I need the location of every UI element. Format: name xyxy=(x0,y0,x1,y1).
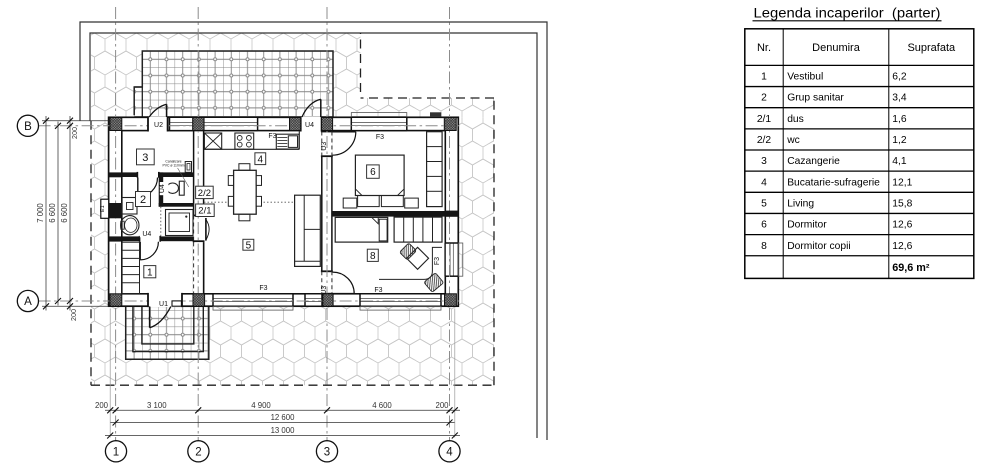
svg-text:200: 200 xyxy=(70,127,79,139)
svg-text:F3: F3 xyxy=(434,257,441,265)
svg-text:2/2: 2/2 xyxy=(757,135,772,146)
svg-text:2/2: 2/2 xyxy=(198,188,211,199)
svg-text:5: 5 xyxy=(246,240,252,251)
svg-text:8: 8 xyxy=(761,241,767,252)
svg-text:2: 2 xyxy=(140,194,146,206)
svg-text:Living: Living xyxy=(787,198,814,209)
svg-text:200: 200 xyxy=(435,401,449,410)
svg-text:3 100: 3 100 xyxy=(147,401,167,410)
svg-text:B: B xyxy=(24,121,32,133)
svg-text:dus: dus xyxy=(787,114,804,125)
svg-text:wc: wc xyxy=(786,135,800,146)
svg-text:4,1: 4,1 xyxy=(892,156,907,167)
svg-text:Bucatarie-sufragerie: Bucatarie-sufragerie xyxy=(787,177,880,188)
svg-text:4: 4 xyxy=(258,154,264,165)
svg-text:15,8: 15,8 xyxy=(892,198,912,209)
svg-text:F3: F3 xyxy=(259,285,267,292)
svg-text:6: 6 xyxy=(761,220,767,231)
svg-text:4 900: 4 900 xyxy=(251,401,271,410)
svg-text:3: 3 xyxy=(142,152,148,164)
svg-text:Legenda incaperilor (parter): Legenda incaperilor (parter) xyxy=(754,6,941,21)
svg-text:2: 2 xyxy=(195,446,201,458)
svg-text:U2: U2 xyxy=(154,122,163,129)
svg-text:E1: E1 xyxy=(100,205,106,212)
svg-text:2/1: 2/1 xyxy=(757,114,772,125)
svg-text:4 600: 4 600 xyxy=(372,401,392,410)
svg-text:3: 3 xyxy=(324,446,330,458)
svg-text:69,6 m²: 69,6 m² xyxy=(892,262,930,274)
svg-text:F3: F3 xyxy=(376,134,384,141)
svg-text:3: 3 xyxy=(761,156,767,167)
svg-text:3,4: 3,4 xyxy=(892,93,907,104)
svg-text:200: 200 xyxy=(95,401,109,410)
svg-text:Grup sanitar: Grup sanitar xyxy=(787,93,844,104)
svg-text:Vestibul: Vestibul xyxy=(787,72,823,83)
svg-text:U3: U3 xyxy=(321,286,328,295)
svg-text:PVC ø 110mm: PVC ø 110mm xyxy=(163,164,185,168)
svg-text:7 000: 7 000 xyxy=(36,203,45,223)
svg-text:12,6: 12,6 xyxy=(892,220,912,231)
svg-text:4: 4 xyxy=(761,177,767,188)
svg-text:U1: U1 xyxy=(159,301,168,308)
svg-text:Denumira: Denumira xyxy=(812,42,861,54)
svg-text:6 600: 6 600 xyxy=(60,203,69,223)
svg-text:F3: F3 xyxy=(374,287,382,294)
svg-text:A: A xyxy=(24,296,32,308)
svg-text:U4: U4 xyxy=(142,231,151,238)
svg-text:F3: F3 xyxy=(268,133,276,140)
svg-text:4: 4 xyxy=(446,446,453,458)
svg-text:U4: U4 xyxy=(159,184,166,193)
svg-text:200: 200 xyxy=(69,309,78,321)
svg-text:Nr.: Nr. xyxy=(757,42,771,54)
svg-text:1,2: 1,2 xyxy=(892,135,907,146)
svg-text:1: 1 xyxy=(113,446,119,458)
svg-text:U4: U4 xyxy=(305,122,314,129)
svg-text:6 600: 6 600 xyxy=(48,203,57,223)
svg-text:1: 1 xyxy=(761,72,767,83)
svg-text:13 000: 13 000 xyxy=(271,426,296,435)
svg-text:1: 1 xyxy=(147,267,153,278)
svg-text:12 600: 12 600 xyxy=(271,413,296,422)
svg-text:Cazangerie: Cazangerie xyxy=(787,156,840,167)
svg-text:12,1: 12,1 xyxy=(892,177,912,188)
svg-text:2/1: 2/1 xyxy=(198,206,211,217)
svg-text:8: 8 xyxy=(370,251,376,262)
svg-text:5: 5 xyxy=(761,198,767,209)
svg-text:U3: U3 xyxy=(321,142,328,151)
svg-text:Suprafata: Suprafata xyxy=(907,42,956,54)
svg-text:2: 2 xyxy=(761,93,767,104)
svg-text:1,6: 1,6 xyxy=(892,114,907,125)
svg-text:6: 6 xyxy=(370,167,376,178)
svg-text:Dormitor copii: Dormitor copii xyxy=(787,241,851,252)
svg-text:12,6: 12,6 xyxy=(892,241,912,252)
svg-text:6,2: 6,2 xyxy=(892,72,907,83)
svg-text:Dormitor: Dormitor xyxy=(787,220,827,231)
